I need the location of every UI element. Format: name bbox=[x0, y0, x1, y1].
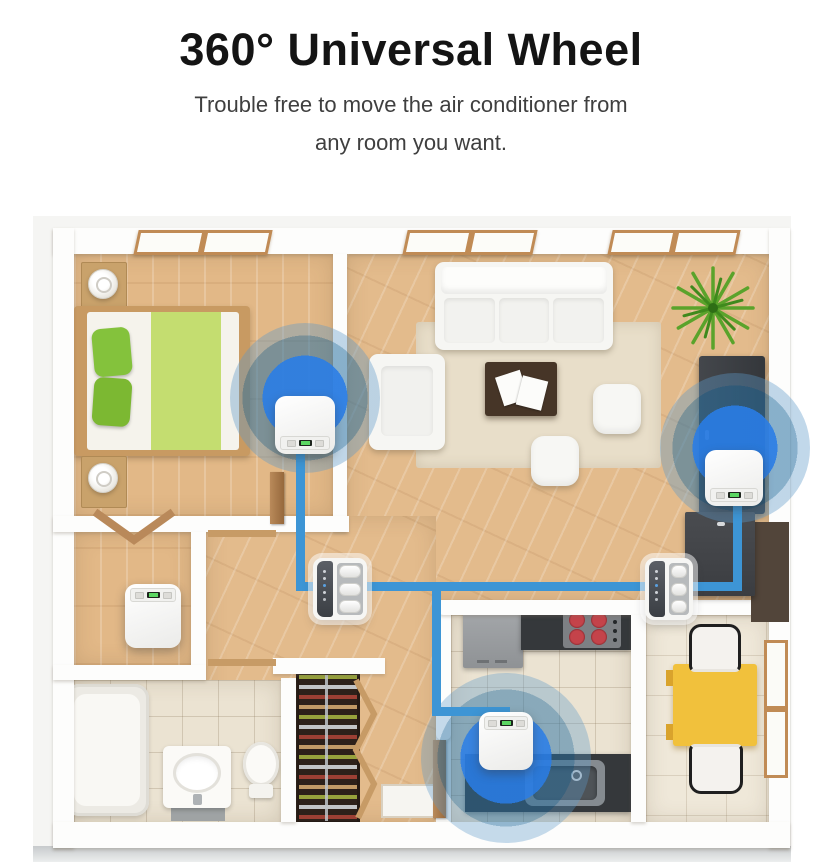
dining-chair-bottom bbox=[689, 744, 743, 794]
sofa-back bbox=[441, 267, 607, 294]
wall-laundry-right bbox=[191, 532, 206, 665]
ac-control-panel bbox=[710, 488, 758, 502]
hallway-ac-unit bbox=[313, 558, 367, 620]
ac-button bbox=[516, 720, 525, 727]
bedroom-ac-unit bbox=[275, 396, 335, 454]
header: 360° Universal Wheel Trouble free to mov… bbox=[0, 0, 822, 162]
bath-mat bbox=[171, 808, 225, 821]
potted-plant bbox=[667, 262, 759, 354]
ac-control-panel bbox=[484, 716, 528, 730]
page-title: 360° Universal Wheel bbox=[0, 24, 822, 76]
ac-display bbox=[147, 592, 160, 598]
table-leg bbox=[666, 670, 673, 686]
bifold-closet-doors bbox=[351, 674, 379, 822]
kitchen-ac-unit bbox=[479, 712, 533, 770]
ac-button bbox=[744, 492, 753, 499]
wall-closet-top bbox=[273, 658, 385, 674]
cabinet-handle bbox=[717, 522, 725, 526]
subtitle-line-1: Trouble free to move the air conditioner… bbox=[0, 86, 822, 124]
dining-chair-top bbox=[689, 624, 741, 672]
ac-vents bbox=[337, 563, 363, 615]
sink-basin bbox=[173, 753, 221, 793]
bathtub-basin bbox=[74, 694, 140, 806]
bedroom-window bbox=[133, 230, 272, 255]
outer-wall-bottom bbox=[53, 822, 790, 848]
ac-front-panel bbox=[317, 561, 333, 617]
sofa-seats bbox=[444, 298, 604, 343]
ac-front-panel bbox=[649, 561, 665, 617]
magazine bbox=[516, 375, 548, 410]
laundry-ac-unit bbox=[125, 584, 181, 648]
ac-display bbox=[500, 720, 513, 726]
ac-vents bbox=[669, 563, 689, 615]
dishwasher-handles bbox=[477, 660, 489, 663]
ac-button bbox=[315, 440, 324, 447]
open-wardrobe-doors bbox=[89, 504, 179, 550]
lamp-bottom bbox=[88, 463, 118, 493]
path-bedroom-vertical bbox=[296, 448, 305, 588]
pillow bbox=[91, 377, 132, 428]
toilet bbox=[243, 742, 279, 786]
dining-table bbox=[673, 664, 757, 746]
ottoman bbox=[593, 384, 641, 434]
ac-button bbox=[716, 492, 725, 499]
living-room-ac-unit bbox=[705, 450, 763, 506]
sink-vanity bbox=[163, 746, 231, 808]
sofa bbox=[435, 262, 613, 350]
table-leg bbox=[666, 724, 673, 740]
lamp-top bbox=[88, 269, 118, 299]
dining-side-ac-unit bbox=[645, 558, 693, 620]
coffee-table bbox=[485, 362, 557, 416]
ottoman bbox=[531, 436, 579, 486]
ac-button bbox=[287, 440, 296, 447]
product-feature-page: { "header": { "title": "360° Universal W… bbox=[0, 0, 822, 862]
wall-laundry-bath bbox=[53, 665, 206, 680]
open-door-bedroom bbox=[270, 472, 284, 524]
ac-control-panel bbox=[130, 588, 176, 602]
hallway-door-sill bbox=[208, 659, 276, 666]
dining-window bbox=[764, 640, 788, 778]
bed bbox=[74, 306, 250, 456]
ac-button bbox=[135, 592, 144, 599]
dishwasher bbox=[463, 610, 523, 668]
low-cabinet-brown bbox=[751, 522, 789, 622]
stove-burner bbox=[569, 629, 585, 645]
floor-plan-illustration bbox=[33, 216, 791, 848]
floor-plan-drop-shadow bbox=[33, 846, 791, 862]
subtitle-line-2: any room you want. bbox=[0, 124, 822, 162]
sink-faucet bbox=[193, 794, 202, 805]
ac-button bbox=[163, 592, 172, 599]
ac-button bbox=[488, 720, 497, 727]
wall-kitchen-dining bbox=[631, 615, 646, 822]
ac-control-panel bbox=[280, 436, 329, 450]
pillow bbox=[91, 326, 133, 377]
armchair-seat bbox=[381, 366, 433, 436]
ac-display bbox=[728, 492, 741, 498]
living-room-window bbox=[402, 230, 537, 255]
wall-bath-closet bbox=[281, 678, 296, 822]
bed-blanket-stripe bbox=[151, 312, 221, 450]
toilet-tank bbox=[249, 784, 273, 798]
stove-burner bbox=[591, 629, 607, 645]
path-kitchen-vertical bbox=[432, 586, 441, 716]
ac-display bbox=[299, 440, 312, 446]
outer-wall-left bbox=[53, 228, 74, 848]
bathtub bbox=[65, 684, 149, 816]
armchair bbox=[369, 354, 445, 450]
wall-kitchen-top bbox=[436, 600, 769, 615]
path-living-vertical bbox=[733, 500, 742, 586]
living-room-window bbox=[607, 230, 740, 255]
hallway-door-sill bbox=[208, 530, 276, 537]
